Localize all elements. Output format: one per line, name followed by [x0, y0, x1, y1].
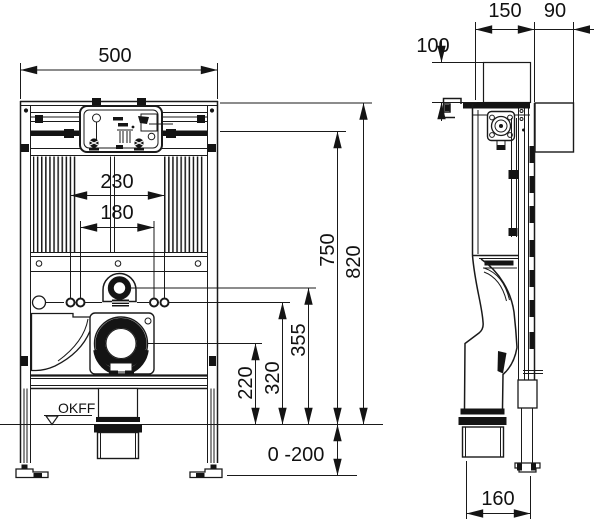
rail-clamp	[35, 115, 43, 123]
dim-front-width-label: 500	[98, 45, 131, 67]
top-extension-box	[484, 63, 531, 103]
water-connection	[103, 273, 136, 306]
corner-screw-right	[210, 108, 214, 112]
dim-total-height-label: 820	[343, 245, 365, 278]
dim-anchor-inner-label: 180	[100, 202, 133, 224]
dim-anchor-outer-label: 230	[100, 171, 133, 193]
dim-side-base-depth-label: 160	[481, 488, 514, 510]
technical-drawing-page: OKFF 500 230 180	[0, 0, 600, 527]
corner-screw-left	[24, 108, 28, 112]
box-clamp	[64, 129, 74, 138]
cistern-access-box	[80, 98, 173, 152]
dim-foot-adjustment-label: 0 -200	[268, 444, 325, 466]
rail-clamp	[197, 115, 205, 123]
box-clamp	[166, 129, 176, 138]
dim-outlet-height-label: 220	[235, 366, 257, 399]
dim-side-top-height-label: 100	[416, 35, 449, 57]
installation-frame-drawing: OKFF 500 230 180	[0, 0, 600, 527]
dim-side-depth-label: 150	[488, 0, 521, 22]
dim-upper-height-label: 750	[317, 233, 339, 266]
outlet-assembly	[90, 313, 154, 375]
floor-level-label: OKFF	[58, 400, 95, 416]
wall-bracket-block	[535, 103, 574, 152]
rear-leg-tube	[518, 380, 537, 408]
dim-anchor-height-label: 320	[262, 361, 284, 394]
dim-side-wall-offset-label: 90	[544, 0, 566, 22]
box-detail-circle	[93, 114, 101, 122]
dim-water-height-label: 355	[288, 323, 310, 356]
